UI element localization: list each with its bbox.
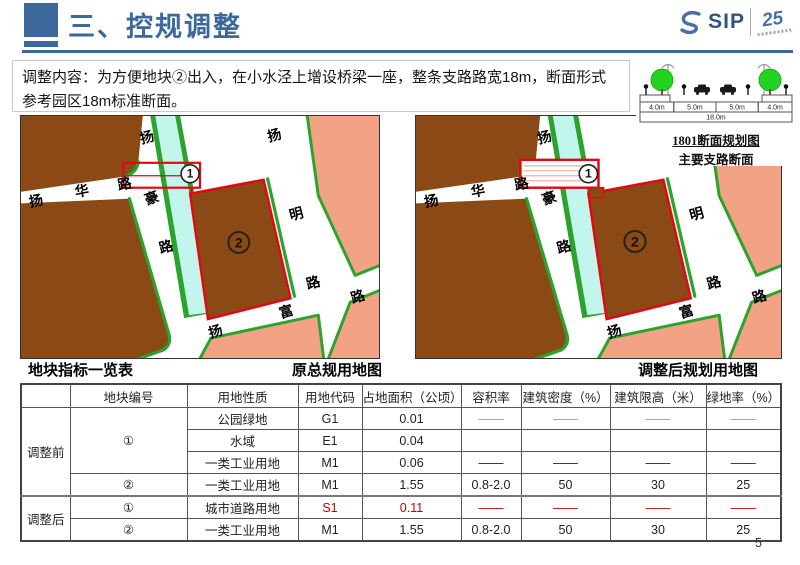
slide: 三、控规调整 SIP 25 调整内容：为方便地块②出入，在小水泾上增设桥梁一座，… xyxy=(0,0,800,565)
table-cell: E1 xyxy=(298,430,362,452)
tree-icon xyxy=(651,65,674,97)
table-cell: —— xyxy=(521,408,610,430)
sidewalk-right xyxy=(762,95,792,102)
header-cell-area: 占地面积（公顷） xyxy=(362,384,461,408)
table-row: ② 一类工业用地 M1 1.55 0.8-2.0 50 30 25 xyxy=(21,474,781,497)
header-cell-land-use: 用地性质 xyxy=(187,384,298,408)
table-cell: —— xyxy=(610,496,706,519)
road-name-label: 扬 xyxy=(423,192,440,210)
table-cell: 1.55 xyxy=(362,474,461,497)
table-cell: —— xyxy=(521,452,610,474)
table-cell: 城市道路用地 xyxy=(187,496,298,519)
table-cell: —— xyxy=(461,452,521,474)
title-bar-mark xyxy=(24,41,58,47)
page-title: 三、控规调整 xyxy=(68,5,242,44)
table-cell: 25 xyxy=(706,519,781,542)
table-header-row: 地块编号 用地性质 用地代码 占地面积（公顷） 容积率 建筑密度（%） 建筑限高… xyxy=(21,384,781,408)
table-cell xyxy=(706,430,781,452)
table-cell xyxy=(461,430,521,452)
original-plan-map: 1 2 扬豪路扬华路扬明路扬富路 xyxy=(20,115,380,359)
table-cell: 0.06 xyxy=(362,452,461,474)
adjustment-description: 调整内容：为方便地块②出入，在小水泾上增设桥梁一座，整条支路路宽18m，断面形式… xyxy=(12,60,630,112)
table-cell: 0.8-2.0 xyxy=(461,519,521,542)
svg-text:1: 1 xyxy=(187,167,194,181)
svg-text:4.0m: 4.0m xyxy=(649,105,665,112)
table-cell: —— xyxy=(461,496,521,519)
header-rule xyxy=(22,50,793,53)
table-cell: —— xyxy=(706,408,781,430)
plot-indicator-table: 地块编号 用地性质 用地代码 占地面积（公顷） 容积率 建筑密度（%） 建筑限高… xyxy=(20,383,782,542)
table-cell: —— xyxy=(610,408,706,430)
table-cell: ① xyxy=(70,496,187,519)
header-cell-far: 容积率 xyxy=(461,384,521,408)
car-icon xyxy=(694,85,710,96)
dimension-strip: 4.0m 5.0m 5.0m 4.0m 18.0m xyxy=(640,102,792,122)
header-cell-plot-no: 地块编号 xyxy=(70,384,187,408)
group-before-cell: 调整前 xyxy=(21,408,70,497)
table-cell: 一类工业用地 xyxy=(187,519,298,542)
table-cell: ② xyxy=(70,474,187,497)
svg-text:1: 1 xyxy=(585,167,592,181)
road-name-label: 华 xyxy=(469,182,486,200)
plot1-badge: 1 xyxy=(181,165,199,183)
anniversary-number: 25 xyxy=(761,9,785,31)
section-diagram-subtitle: 主要支路断面 xyxy=(636,149,796,168)
table-cell: 1.55 xyxy=(362,519,461,542)
svg-text:4.0m: 4.0m xyxy=(767,105,783,112)
tree-icon xyxy=(758,65,781,97)
sidewalk-left xyxy=(640,95,670,102)
car-icon xyxy=(720,85,736,96)
table-row: 调整后 ① 城市道路用地 S1 0.11 —— —— —— —— xyxy=(21,496,781,519)
table-cell: —— xyxy=(706,452,781,474)
svg-text:5.0m: 5.0m xyxy=(687,105,703,112)
table-cell: 一类工业用地 xyxy=(187,474,298,497)
sip-s-icon xyxy=(677,9,703,35)
logo-divider xyxy=(750,8,751,36)
table-cell xyxy=(521,430,610,452)
table-cell: —— xyxy=(706,496,781,519)
table-cell: ② xyxy=(70,519,187,542)
section-diagram-title: 1801断面规划图 xyxy=(636,130,796,149)
table-cell: 25 xyxy=(706,474,781,497)
road-section-diagram: 4.0m 5.0m 5.0m 4.0m 18.0m 1801断面规划图 主要支路… xyxy=(636,58,796,166)
table-cell xyxy=(610,430,706,452)
original-map-caption: 原总规用地图 xyxy=(292,359,382,380)
header-cell-land-code: 用地代码 xyxy=(298,384,362,408)
sip-logo: SIP 25 xyxy=(677,8,790,36)
table-cell: 公园绿地 xyxy=(187,408,298,430)
table-cell: M1 xyxy=(298,474,362,497)
table-cell: 水域 xyxy=(187,430,298,452)
plot1-badge: 1 xyxy=(579,165,597,183)
table-cell: 一类工业用地 xyxy=(187,452,298,474)
plot1-connector xyxy=(191,188,192,195)
plot1-stub xyxy=(589,188,603,198)
table-cell: —— xyxy=(521,496,610,519)
svg-text:5.0m: 5.0m xyxy=(729,105,745,112)
table-cell: G1 xyxy=(298,408,362,430)
header-cell-group xyxy=(21,384,70,408)
table-cell: —— xyxy=(461,408,521,430)
table-cell: 0.8-2.0 xyxy=(461,474,521,497)
svg-text:18.0m: 18.0m xyxy=(706,115,726,122)
title-square-mark xyxy=(24,3,58,37)
table-cell: M1 xyxy=(298,519,362,542)
table-cell: 0.04 xyxy=(362,430,461,452)
table-cell: M1 xyxy=(298,452,362,474)
table-cell: ① xyxy=(70,408,187,474)
table-cell: 30 xyxy=(610,519,706,542)
svg-text:2: 2 xyxy=(631,234,639,250)
table-cell: 0.01 xyxy=(362,408,461,430)
page-number: 5 xyxy=(755,536,762,550)
table-row: 调整前 ① 公园绿地 G1 0.01 —— —— —— —— xyxy=(21,408,781,430)
indicator-table-caption: 地块指标一览表 xyxy=(28,359,133,380)
adjusted-map-caption: 调整后规划用地图 xyxy=(638,359,758,380)
header-cell-height: 建筑限高（米） xyxy=(610,384,706,408)
table-cell: 50 xyxy=(521,519,610,542)
sip-logo-text: SIP xyxy=(708,10,745,34)
table-cell: 0.11 xyxy=(362,496,461,519)
table-cell: 50 xyxy=(521,474,610,497)
table-cell: S1 xyxy=(298,496,362,519)
table-row: ② 一类工业用地 M1 1.55 0.8-2.0 50 30 25 xyxy=(21,519,781,542)
anniversary-mark: 25 xyxy=(754,8,791,36)
group-after-cell: 调整后 xyxy=(21,496,70,541)
svg-text:2: 2 xyxy=(235,234,243,250)
header-cell-density: 建筑密度（%） xyxy=(521,384,610,408)
table-cell: —— xyxy=(610,452,706,474)
table-cell: 30 xyxy=(610,474,706,497)
header-cell-green: 绿地率（%） xyxy=(706,384,781,408)
